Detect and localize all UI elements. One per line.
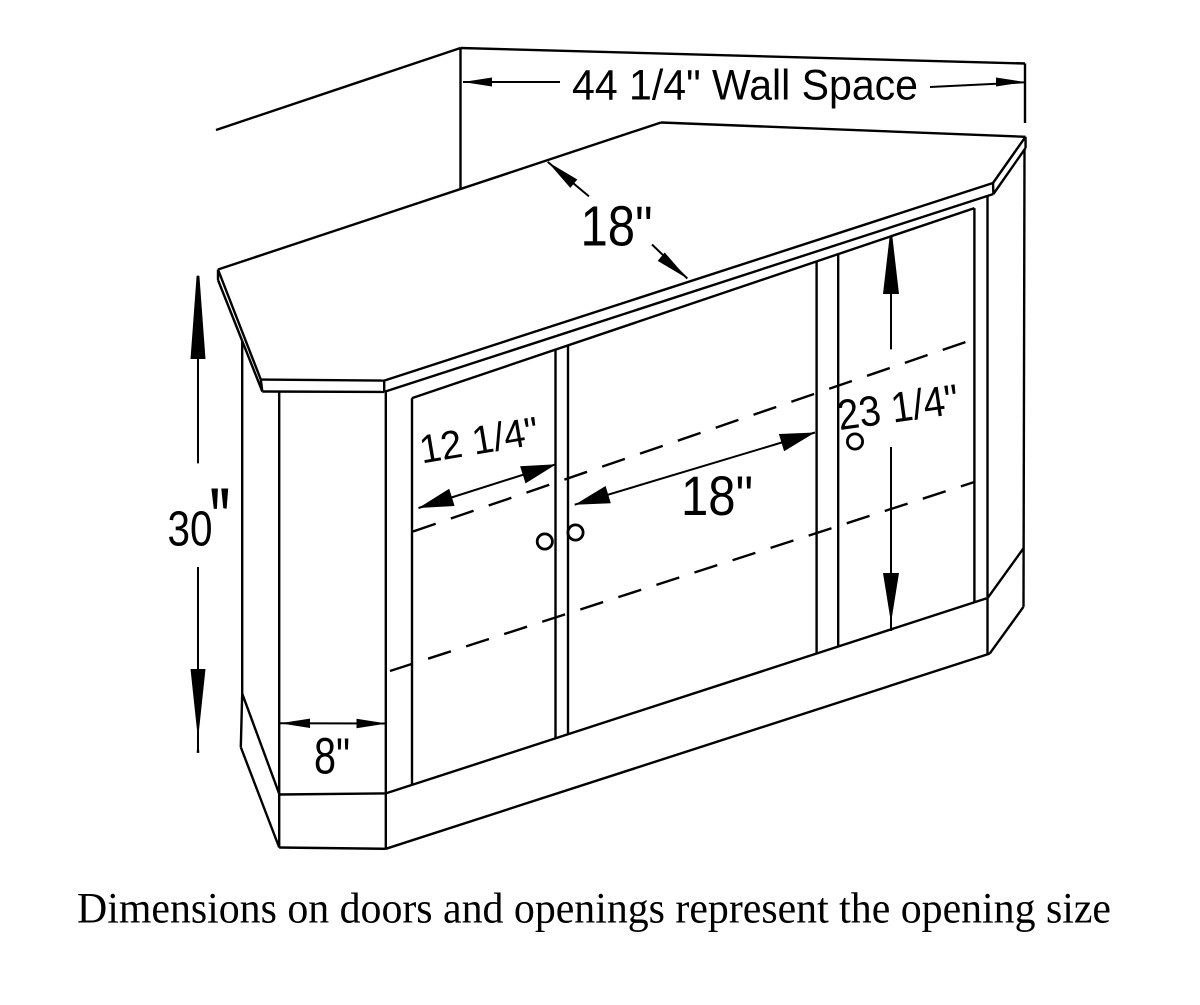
svg-text:18": 18": [681, 464, 753, 527]
svg-text:44 1/4" Wall Space: 44 1/4" Wall Space: [572, 61, 918, 108]
svg-text:Dimensions on doors and openin: Dimensions on doors and openings represe…: [77, 884, 1111, 932]
svg-text:18": 18": [581, 195, 653, 259]
svg-text:8": 8": [314, 728, 350, 785]
svg-text:30: 30: [168, 503, 213, 557]
